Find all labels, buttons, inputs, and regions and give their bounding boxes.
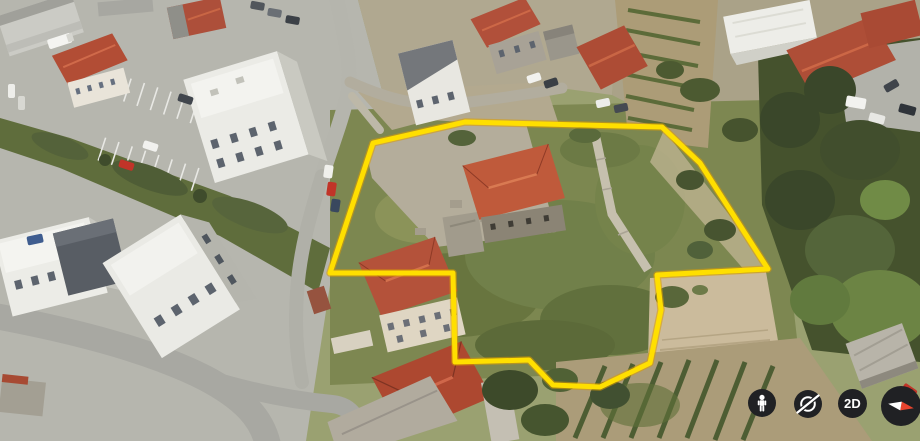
compass-needle (887, 399, 914, 412)
compass-button[interactable] (881, 386, 920, 426)
2d-toggle-button[interactable]: 2D (838, 389, 867, 418)
aerial-imagery (0, 0, 920, 441)
2d-toggle-label: 2D (844, 396, 861, 411)
orbit-button[interactable] (794, 390, 822, 418)
compass-icon (884, 389, 918, 423)
map-canvas[interactable]: 2D (0, 0, 920, 441)
pegman-icon (754, 394, 770, 412)
street-view-button[interactable] (748, 389, 776, 417)
compass-needle-north (900, 402, 914, 413)
orbit-icon (796, 392, 820, 416)
compass-needle-south (887, 399, 901, 410)
